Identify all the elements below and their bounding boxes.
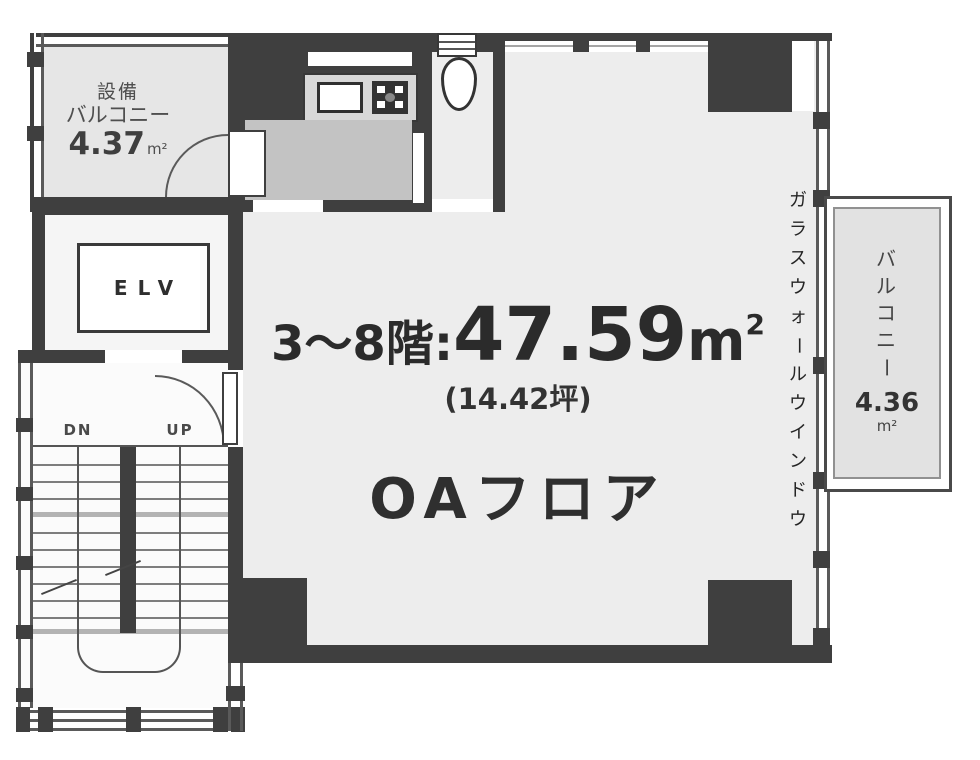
left-balcony-area-unit: m² <box>147 140 168 158</box>
window-mullion <box>16 556 33 570</box>
title-area-value: 47.59 <box>453 292 687 378</box>
window-mullion <box>636 33 650 52</box>
toilet-tank <box>437 33 477 57</box>
elevator-wall-left <box>32 203 45 363</box>
left-balcony-area: 4.37 m² <box>46 126 190 166</box>
elevator-cab: ELV <box>77 243 210 333</box>
stairs-up-label: UP <box>158 419 202 441</box>
stair-wall-left-inner <box>30 363 33 708</box>
tsubo-subtitle: (14.42坪) <box>318 380 718 414</box>
stove-burner <box>377 86 385 93</box>
column-bottom-right <box>708 580 792 645</box>
corner-block-bottom-left <box>228 578 307 663</box>
kitchen-window <box>308 52 412 66</box>
stair-divider <box>120 447 136 633</box>
wall-bottom <box>228 645 832 663</box>
window-mullion <box>38 707 53 732</box>
right-balcony-area-unit: m² <box>833 417 941 435</box>
floor-plan: 設備 バルコニー 4.37 m² ELV DN <box>0 0 980 760</box>
window-mullion <box>813 551 830 568</box>
window-mullion <box>16 688 33 702</box>
window-mullion <box>126 707 141 732</box>
right-balcony-area-value: 4.36 <box>833 388 941 418</box>
window-mullion <box>16 418 33 432</box>
elevator-door-opening <box>105 350 182 363</box>
stairs-down-label: DN <box>56 419 100 441</box>
door-leaf <box>222 372 238 445</box>
left-balcony-name-line2: バルコニー <box>46 101 190 127</box>
left-balcony-name-text: バルコニー <box>66 99 171 129</box>
toilet-door-leaf <box>413 133 424 203</box>
elevator-label: ELV <box>104 276 183 300</box>
window-mullion <box>213 707 228 732</box>
tank-line <box>439 48 475 50</box>
elevator-wall-top <box>32 203 243 215</box>
sink-icon <box>317 82 363 113</box>
window-mullion <box>16 487 33 501</box>
stove-icon <box>372 81 408 114</box>
oa-floor-label: OAフロア <box>318 456 718 532</box>
left-balcony-area-value: 4.37 <box>68 126 145 162</box>
stove-burner <box>377 101 385 108</box>
window-mullion <box>27 52 44 67</box>
window-mullion <box>16 707 30 732</box>
kitchen-entry-opening <box>253 200 323 212</box>
left-balcony-wall-top-inner <box>36 44 228 47</box>
toilet-entry-opening <box>432 199 493 212</box>
title-area-unit-sup: 2 <box>745 308 764 341</box>
stove-burner <box>395 101 403 108</box>
left-balcony-wall-top-outer <box>36 33 228 37</box>
stove-burner <box>395 86 403 93</box>
window-mullion <box>16 625 33 639</box>
room-area-title: 3〜8階: 47.59 m 2 <box>218 292 818 380</box>
stove-center <box>385 93 395 102</box>
title-area-unit: m <box>687 309 745 374</box>
column-top-right <box>708 41 792 112</box>
tank-line <box>439 41 475 43</box>
door-leaf <box>228 130 266 197</box>
window-sill-line <box>505 45 708 47</box>
window-gap <box>792 41 814 111</box>
title-floors: 3〜8階: <box>271 304 453 374</box>
window-mullion <box>573 33 589 52</box>
window-mullion <box>226 686 245 701</box>
kitchen-area <box>245 120 412 200</box>
window-mullion <box>813 112 830 129</box>
right-balcony-name: バルコニー <box>875 246 897 386</box>
window-mullion <box>27 126 44 141</box>
